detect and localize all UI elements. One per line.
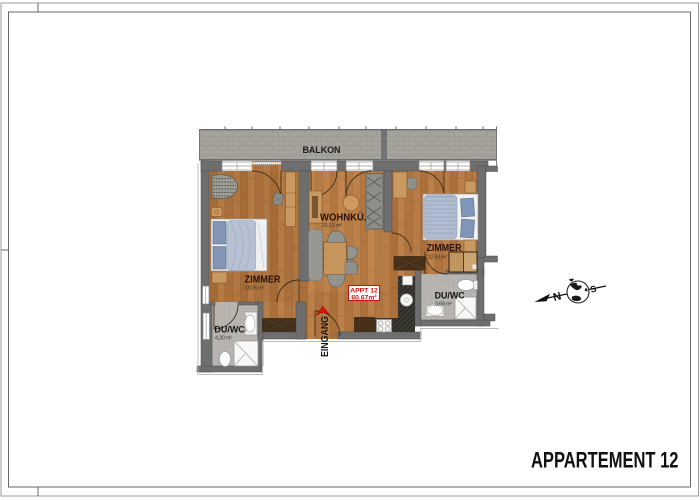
svg-text:4.30 m²: 4.30 m² bbox=[215, 336, 232, 342]
svg-text:WOHNKÜ.: WOHNKÜ. bbox=[320, 210, 367, 223]
svg-text:ZIMMER: ZIMMER bbox=[427, 242, 462, 254]
svg-text:3.69 m²: 3.69 m² bbox=[435, 301, 452, 307]
svg-text:DU/WC: DU/WC bbox=[435, 290, 465, 300]
svg-text:APPARTEMENT 12: APPARTEMENT 12 bbox=[531, 448, 679, 473]
svg-text:18.05 m²: 18.05 m² bbox=[245, 286, 264, 292]
svg-text:12.64 m²: 12.64 m² bbox=[428, 255, 447, 261]
svg-text:21.12 m²: 21.12 m² bbox=[322, 223, 342, 229]
svg-text:EINGANG: EINGANG bbox=[319, 316, 331, 357]
svg-text:BALKON: BALKON bbox=[303, 145, 341, 155]
svg-text:DU/WC: DU/WC bbox=[214, 324, 245, 334]
svg-text:60.67m²: 60.67m² bbox=[351, 294, 377, 301]
svg-text:ZIMMER: ZIMMER bbox=[245, 273, 281, 285]
